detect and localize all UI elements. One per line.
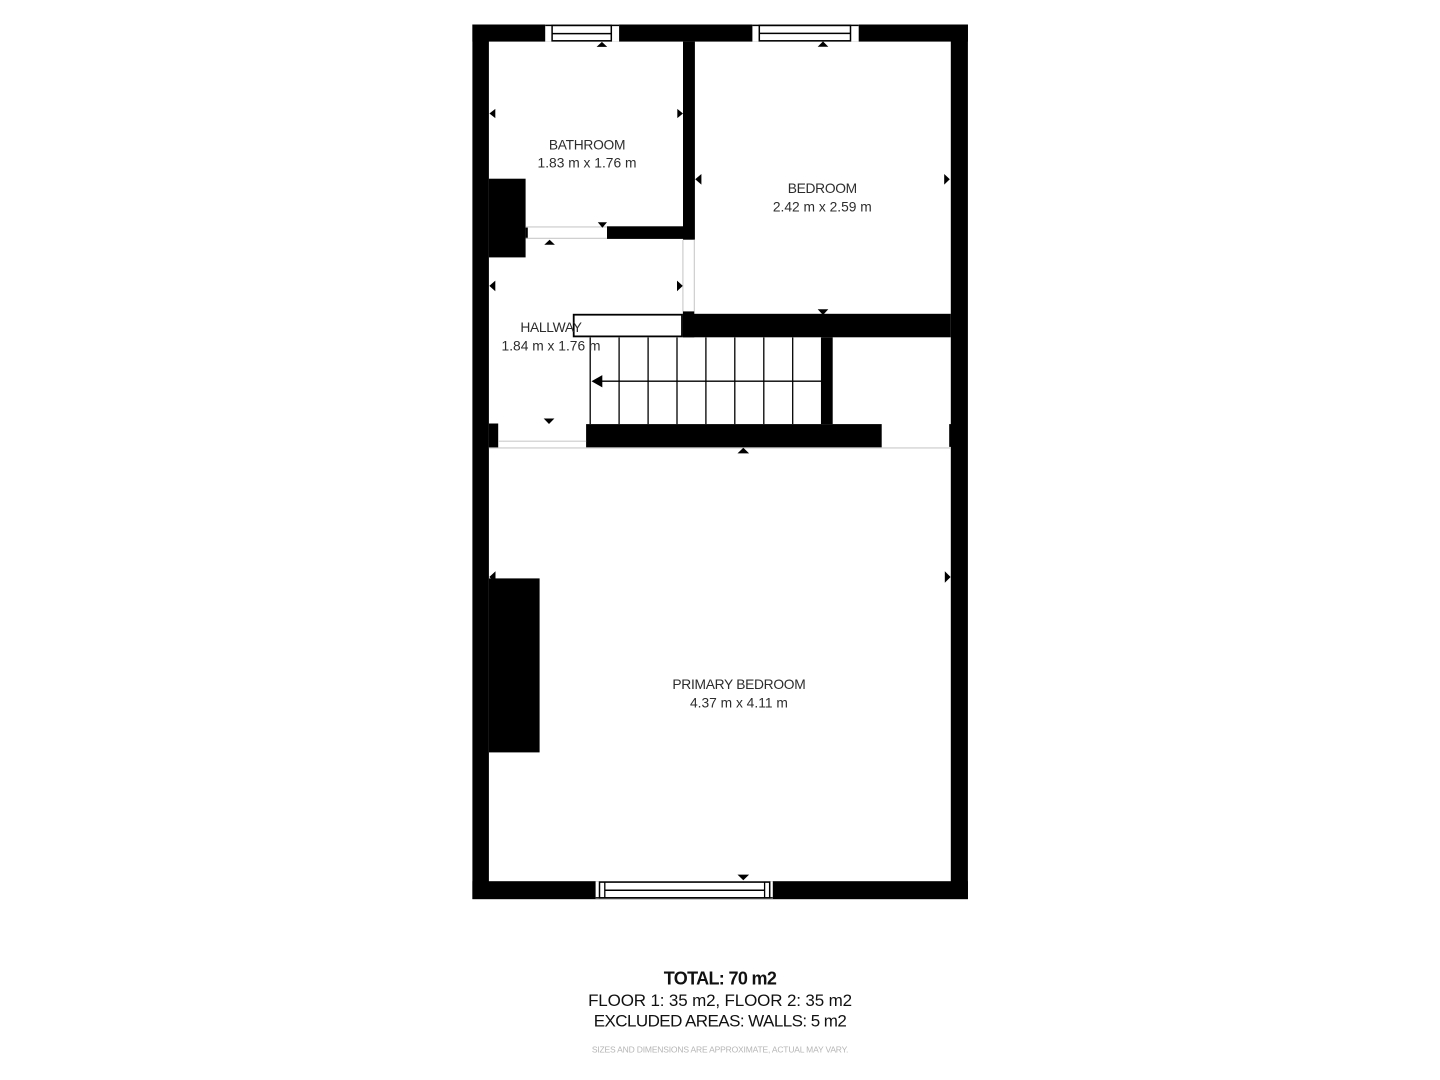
- svg-text:EXCLUDED AREAS: WALLS: 5 m2: EXCLUDED AREAS: WALLS: 5 m2: [594, 1011, 847, 1030]
- svg-text:1.83 m x 1.76 m: 1.83 m x 1.76 m: [538, 155, 637, 170]
- svg-text:BEDROOM: BEDROOM: [788, 181, 857, 196]
- svg-text:4.37 m x 4.11 m: 4.37 m x 4.11 m: [690, 695, 788, 710]
- svg-text:SIZES AND DIMENSIONS ARE APPRO: SIZES AND DIMENSIONS ARE APPROXIMATE, AC…: [592, 1044, 848, 1054]
- svg-text:BATHROOM: BATHROOM: [549, 137, 625, 152]
- svg-text:2.42 m x 2.59 m: 2.42 m x 2.59 m: [773, 199, 872, 214]
- svg-text:HALLWAY: HALLWAY: [520, 320, 581, 335]
- svg-text:1.84 m x 1.76 m: 1.84 m x 1.76 m: [502, 338, 601, 353]
- svg-text:FLOOR 1: 35 m2, FLOOR 2: 35 m2: FLOOR 1: 35 m2, FLOOR 2: 35 m2: [588, 991, 852, 1010]
- svg-text:PRIMARY BEDROOM: PRIMARY BEDROOM: [672, 677, 805, 692]
- svg-text:TOTAL: 70 m2: TOTAL: 70 m2: [664, 969, 777, 989]
